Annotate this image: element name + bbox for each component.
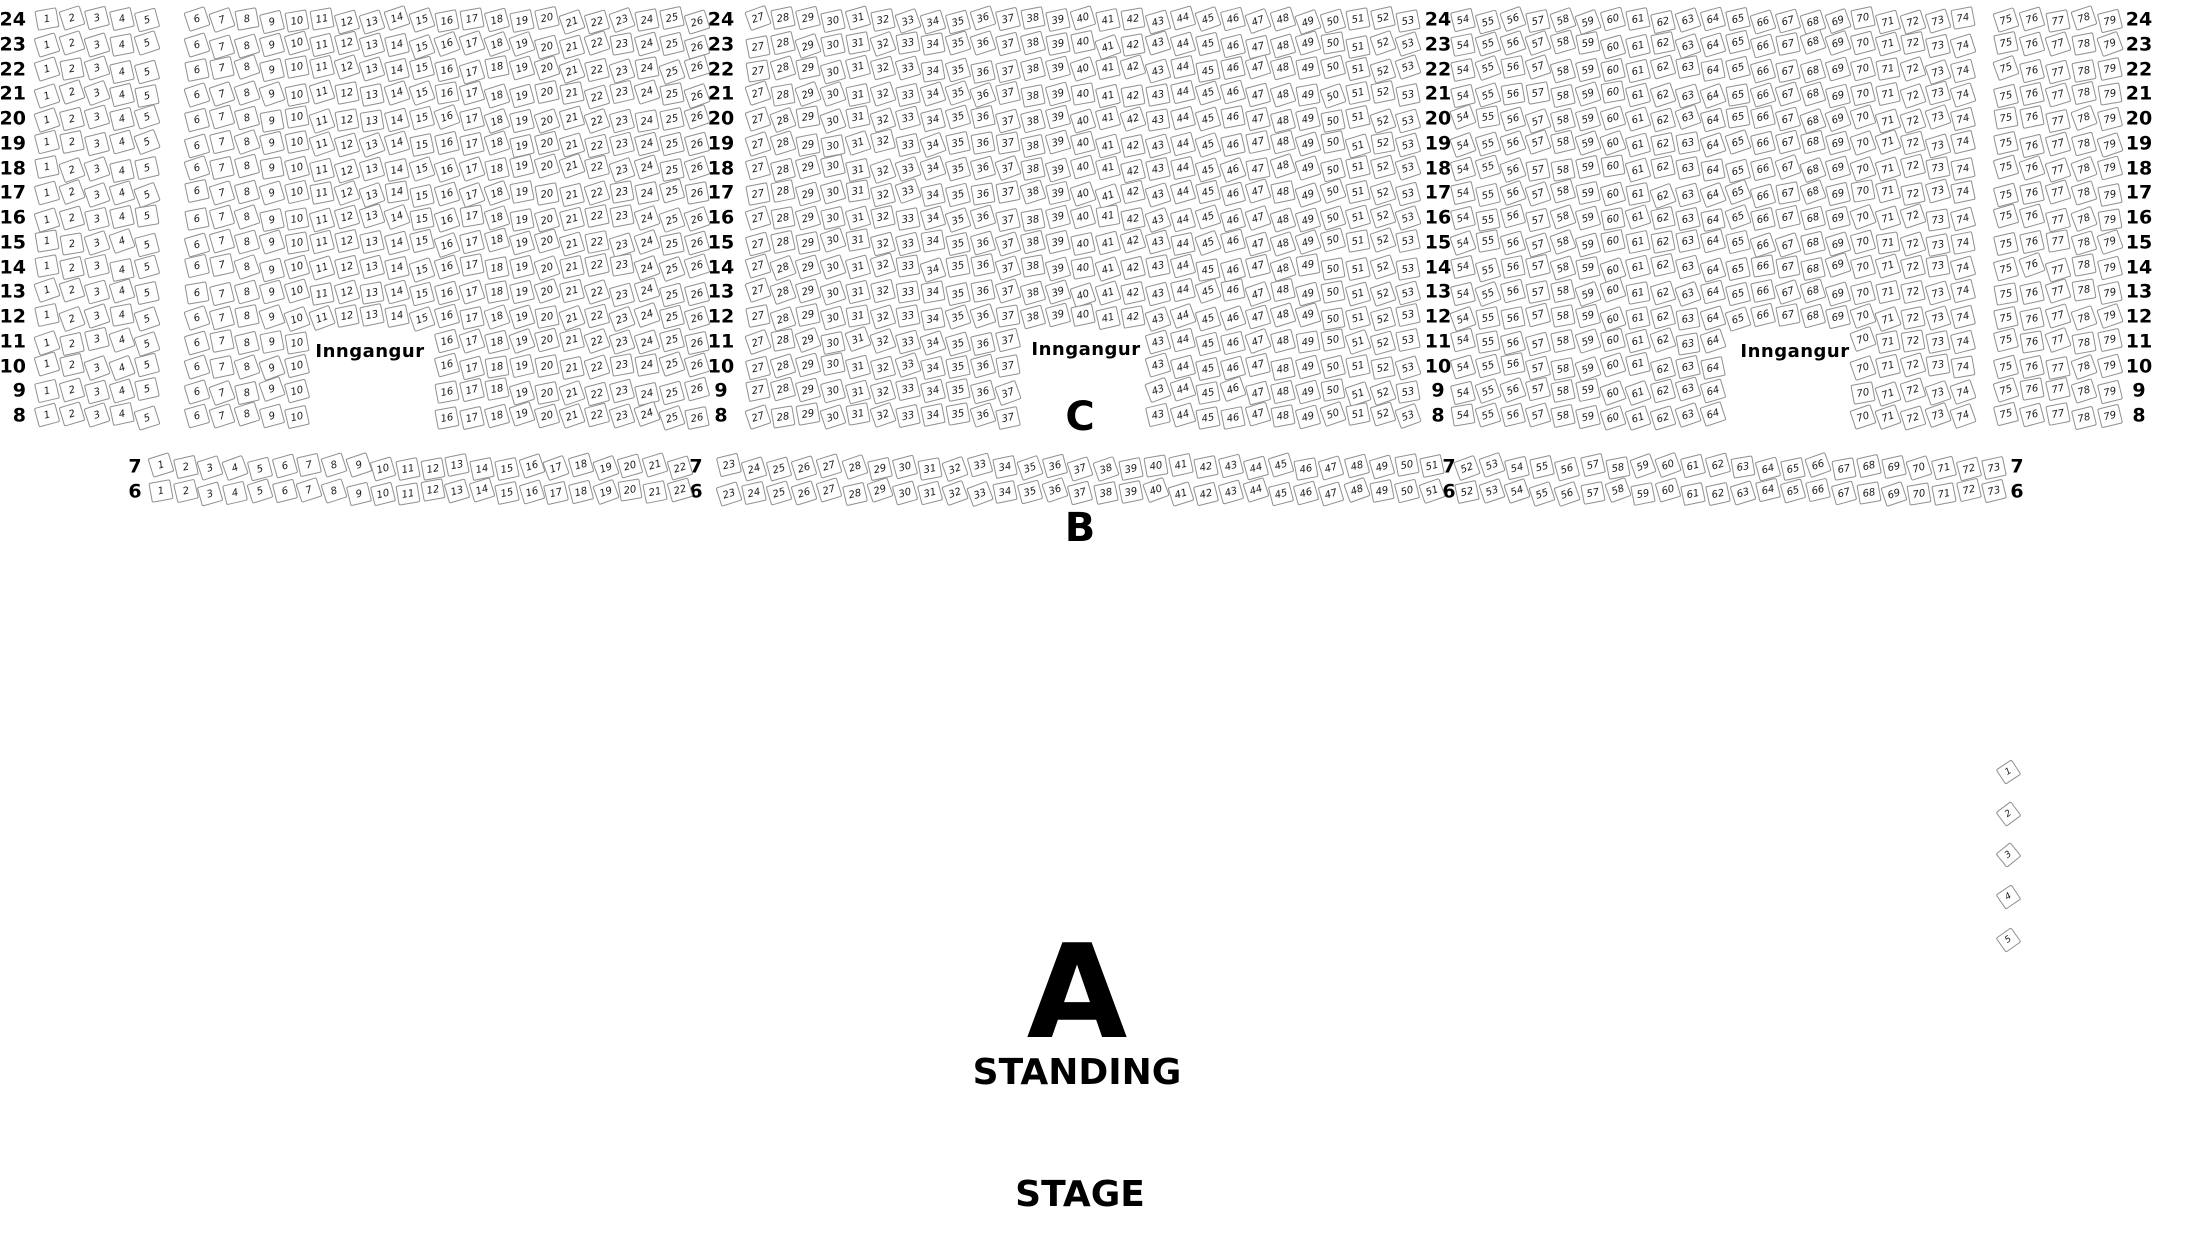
seat-5[interactable]: 5 (133, 405, 160, 431)
seat-38[interactable]: 38 (1020, 56, 1046, 81)
seat-31[interactable]: 31 (845, 304, 870, 328)
seat-60[interactable]: 60 (1599, 130, 1626, 156)
seat-46[interactable]: 46 (1220, 6, 1246, 31)
seat-4[interactable]: 4 (221, 455, 249, 481)
seat-34[interactable]: 34 (920, 229, 945, 252)
seat-75[interactable]: 75 (1993, 204, 2020, 229)
seat-62[interactable]: 62 (1705, 482, 1731, 506)
seat-39[interactable]: 39 (1045, 256, 1072, 281)
seat-5[interactable]: 5 (134, 281, 160, 305)
seat-34[interactable]: 34 (920, 356, 946, 380)
seat-33[interactable]: 33 (895, 377, 921, 401)
seat-48[interactable]: 48 (1343, 454, 1369, 479)
seat-30[interactable]: 30 (891, 481, 918, 506)
seat-73[interactable]: 73 (1925, 8, 1952, 34)
seat-61[interactable]: 61 (1625, 329, 1651, 354)
seat-40[interactable]: 40 (1070, 303, 1096, 327)
seat-75[interactable]: 75 (1993, 182, 2019, 207)
seat-41[interactable]: 41 (1094, 281, 1121, 307)
seat-35[interactable]: 35 (945, 281, 971, 305)
seat-54[interactable]: 54 (1450, 205, 1476, 230)
seat-29[interactable]: 29 (794, 327, 822, 353)
seat-68[interactable]: 68 (1800, 59, 1827, 84)
seat-70[interactable]: 70 (1850, 255, 1876, 280)
seat-20[interactable]: 20 (617, 454, 644, 479)
seat-7[interactable]: 7 (208, 380, 236, 406)
seat-12[interactable]: 12 (334, 158, 361, 184)
seat-21[interactable]: 21 (558, 9, 585, 35)
seat-46[interactable]: 46 (1219, 376, 1246, 402)
seat-43[interactable]: 43 (1145, 157, 1171, 181)
seat-15[interactable]: 15 (408, 156, 435, 182)
seat-31[interactable]: 31 (845, 31, 870, 55)
seat-38[interactable]: 38 (1020, 84, 1045, 108)
seat-14[interactable]: 14 (384, 33, 410, 58)
seat-2[interactable]: 2 (59, 57, 84, 81)
seat-2[interactable]: 2 (59, 352, 85, 376)
seat-23[interactable]: 23 (609, 180, 634, 204)
seat-64[interactable]: 64 (1700, 228, 1726, 253)
seat-64[interactable]: 64 (1700, 6, 1727, 31)
seat-49[interactable]: 49 (1294, 182, 1321, 208)
seat-37[interactable]: 37 (994, 155, 1021, 181)
seat-35[interactable]: 35 (945, 104, 972, 129)
seat-8[interactable]: 8 (233, 80, 260, 106)
seat-8[interactable]: 8 (233, 204, 260, 230)
seat-67[interactable]: 67 (1831, 457, 1856, 481)
seat-49[interactable]: 49 (1368, 455, 1395, 480)
seat-59[interactable]: 59 (1575, 256, 1601, 280)
seat-9[interactable]: 9 (259, 109, 284, 133)
seat-20[interactable]: 20 (534, 305, 559, 329)
seat-28[interactable]: 28 (770, 376, 796, 401)
seat-11[interactable]: 11 (309, 282, 334, 306)
seat-61[interactable]: 61 (1625, 82, 1651, 107)
seat-15[interactable]: 15 (409, 133, 435, 157)
seat-31[interactable]: 31 (845, 402, 870, 426)
seat-58[interactable]: 58 (1550, 378, 1576, 402)
seat-58[interactable]: 58 (1549, 204, 1576, 230)
seat-67[interactable]: 67 (1775, 32, 1801, 56)
seat-19[interactable]: 19 (509, 180, 534, 204)
seat-58[interactable]: 58 (1604, 477, 1632, 503)
seat-56[interactable]: 56 (1500, 82, 1525, 105)
seat-45[interactable]: 45 (1195, 80, 1222, 106)
seat-72[interactable]: 72 (1956, 457, 1982, 482)
seat-59[interactable]: 59 (1575, 378, 1601, 402)
seat-51[interactable]: 51 (1345, 306, 1371, 331)
seat-10[interactable]: 10 (284, 232, 309, 256)
seat-18[interactable]: 18 (484, 228, 511, 253)
seat-75[interactable]: 75 (1993, 84, 2019, 109)
seat-35[interactable]: 35 (1017, 455, 1044, 481)
seat-39[interactable]: 39 (1045, 32, 1071, 56)
seat-61[interactable]: 61 (1624, 380, 1652, 406)
seat-52[interactable]: 52 (1370, 132, 1395, 156)
seat-35[interactable]: 35 (945, 131, 971, 155)
seat-49[interactable]: 49 (1295, 330, 1320, 353)
seat-23[interactable]: 23 (608, 157, 635, 183)
seat-37[interactable]: 37 (995, 81, 1021, 105)
seat-71[interactable]: 71 (1874, 306, 1901, 332)
seat-56[interactable]: 56 (1499, 377, 1526, 403)
seat-26[interactable]: 26 (683, 253, 710, 279)
seat-65[interactable]: 65 (1725, 282, 1751, 307)
seat-40[interactable]: 40 (1070, 204, 1097, 229)
seat-10[interactable]: 10 (284, 180, 310, 204)
seat-76[interactable]: 76 (2019, 181, 2045, 205)
seat-62[interactable]: 62 (1650, 132, 1676, 156)
seat-40[interactable]: 40 (1143, 455, 1168, 478)
seat-24[interactable]: 24 (741, 457, 768, 483)
seat-68[interactable]: 68 (1800, 130, 1826, 155)
seat-70[interactable]: 70 (1849, 156, 1876, 182)
seat-70[interactable]: 70 (1850, 230, 1877, 255)
seat-59[interactable]: 59 (1575, 106, 1602, 131)
seat-39[interactable]: 39 (1044, 279, 1071, 305)
seat-12[interactable]: 12 (334, 9, 361, 34)
seat-31[interactable]: 31 (844, 130, 871, 156)
seat-40[interactable]: 40 (1069, 181, 1096, 207)
seat-79[interactable]: 79 (2097, 82, 2122, 105)
seat-11[interactable]: 11 (308, 131, 335, 157)
seat-29[interactable]: 29 (794, 33, 821, 59)
seat-52[interactable]: 52 (1370, 401, 1397, 427)
seat-9[interactable]: 9 (258, 304, 285, 330)
seat-69[interactable]: 69 (1824, 106, 1852, 132)
seat-57[interactable]: 57 (1525, 81, 1550, 105)
seat-8[interactable]: 8 (234, 331, 260, 356)
seat-59[interactable]: 59 (1575, 205, 1602, 230)
seat-26[interactable]: 26 (791, 480, 818, 506)
seat-1[interactable]: 1 (34, 352, 61, 378)
seat-51[interactable]: 51 (1345, 354, 1371, 378)
seat-61[interactable]: 61 (1624, 405, 1651, 431)
seat-18[interactable]: 18 (483, 31, 511, 57)
seat-23[interactable]: 23 (608, 305, 636, 331)
seat-43[interactable]: 43 (1144, 207, 1171, 233)
seat-42[interactable]: 42 (1120, 55, 1147, 81)
seat-70[interactable]: 70 (1905, 455, 1932, 481)
seat-79[interactable]: 79 (2097, 353, 2124, 378)
seat-38[interactable]: 38 (1020, 30, 1046, 55)
seat-55[interactable]: 55 (1475, 9, 1502, 34)
seat-74[interactable]: 74 (1950, 305, 1976, 330)
seat-3[interactable]: 3 (83, 182, 110, 208)
seat-55[interactable]: 55 (1474, 82, 1501, 108)
seat-37[interactable]: 37 (1067, 480, 1093, 505)
seat-6[interactable]: 6 (184, 32, 211, 58)
seat-21[interactable]: 21 (559, 105, 586, 130)
seat-35[interactable]: 35 (944, 80, 971, 106)
seat-64[interactable]: 64 (1755, 477, 1781, 502)
seat-58[interactable]: 58 (1550, 178, 1577, 203)
seat-11[interactable]: 11 (308, 305, 336, 331)
seat-22[interactable]: 22 (584, 84, 611, 110)
seat-2[interactable]: 2 (58, 306, 86, 332)
seat-29[interactable]: 29 (795, 154, 822, 179)
seat-27[interactable]: 27 (744, 80, 771, 106)
seat-67[interactable]: 67 (1774, 154, 1801, 180)
seat-32[interactable]: 32 (869, 402, 896, 428)
seat-33[interactable]: 33 (895, 304, 920, 328)
seat-19[interactable]: 19 (592, 479, 620, 505)
seat-50[interactable]: 50 (1319, 178, 1346, 204)
seat-14[interactable]: 14 (384, 158, 410, 182)
seat-28[interactable]: 28 (770, 6, 796, 30)
seat-8[interactable]: 8 (234, 7, 259, 31)
seat-74[interactable]: 74 (1950, 106, 1976, 131)
seat-64[interactable]: 64 (1700, 305, 1727, 331)
seat-52[interactable]: 52 (1370, 155, 1396, 180)
seat-9[interactable]: 9 (259, 208, 285, 232)
seat-49[interactable]: 49 (1295, 405, 1322, 430)
seat-4[interactable]: 4 (109, 130, 136, 155)
seat-21[interactable]: 21 (559, 278, 585, 303)
seat-36[interactable]: 36 (970, 332, 996, 356)
seat-48[interactable]: 48 (1270, 278, 1296, 302)
seat-1[interactable]: 1 (34, 230, 59, 253)
seat-51[interactable]: 51 (1345, 180, 1371, 204)
seat-39[interactable]: 39 (1045, 181, 1071, 205)
seat-41[interactable]: 41 (1094, 34, 1122, 60)
seat-64[interactable]: 64 (1699, 83, 1727, 109)
seat-31[interactable]: 31 (845, 355, 871, 380)
seat-63[interactable]: 63 (1674, 33, 1701, 59)
seat-58[interactable]: 58 (1550, 304, 1575, 328)
seat-46[interactable]: 46 (1220, 79, 1247, 104)
seat-57[interactable]: 57 (1524, 54, 1551, 80)
seat-37[interactable]: 37 (995, 231, 1022, 257)
seat-55[interactable]: 55 (1529, 454, 1555, 478)
seat-47[interactable]: 47 (1245, 82, 1271, 107)
seat-3[interactable]: 3 (83, 303, 110, 329)
seat-44[interactable]: 44 (1243, 456, 1269, 481)
seat-18[interactable]: 18 (568, 480, 594, 505)
seat-23[interactable]: 23 (608, 7, 635, 33)
seat-73[interactable]: 73 (1925, 179, 1952, 204)
seat-68[interactable]: 68 (1800, 304, 1827, 329)
seat-25[interactable]: 25 (659, 328, 685, 353)
seat-73[interactable]: 73 (1925, 133, 1952, 159)
seat-56[interactable]: 56 (1500, 279, 1526, 304)
seat-7[interactable]: 7 (208, 81, 235, 107)
seat-4[interactable]: 4 (109, 33, 134, 57)
seat-31[interactable]: 31 (917, 480, 943, 505)
seat-18[interactable]: 18 (484, 377, 509, 401)
seat-71[interactable]: 71 (1875, 179, 1901, 204)
seat-43[interactable]: 43 (1144, 376, 1172, 402)
seat-46[interactable]: 46 (1220, 56, 1246, 80)
seat-8[interactable]: 8 (234, 154, 260, 179)
seat-1[interactable]: 1 (34, 379, 60, 403)
seat-9[interactable]: 9 (346, 481, 372, 506)
seat-44[interactable]: 44 (1170, 105, 1196, 130)
seat-61[interactable]: 61 (1625, 230, 1651, 254)
seat-62[interactable]: 62 (1650, 280, 1677, 305)
seat-16[interactable]: 16 (433, 103, 461, 129)
seat-31[interactable]: 31 (917, 458, 942, 482)
seat-65[interactable]: 65 (1725, 158, 1751, 183)
seat-77[interactable]: 77 (2045, 180, 2072, 206)
seat-64[interactable]: 64 (1699, 181, 1727, 207)
seat-28[interactable]: 28 (770, 158, 796, 183)
seat-29[interactable]: 29 (795, 181, 822, 206)
seat-2[interactable]: 2 (59, 401, 86, 426)
seat-3[interactable]: 3 (84, 379, 110, 404)
seat-43[interactable]: 43 (1145, 282, 1171, 307)
seat-61[interactable]: 61 (1680, 481, 1706, 505)
seat-53[interactable]: 53 (1394, 205, 1421, 231)
seat-13[interactable]: 13 (359, 83, 384, 107)
seat-27[interactable]: 27 (745, 205, 772, 231)
seat-4[interactable]: 4 (109, 258, 135, 282)
seat-65[interactable]: 65 (1724, 204, 1751, 230)
seat-28[interactable]: 28 (770, 353, 797, 379)
seat-64[interactable]: 64 (1700, 32, 1727, 58)
seat-4[interactable]: 4 (1995, 884, 2021, 910)
seat-41[interactable]: 41 (1095, 205, 1120, 228)
seat-59[interactable]: 59 (1629, 453, 1656, 479)
seat-70[interactable]: 70 (1849, 326, 1877, 352)
seat-71[interactable]: 71 (1875, 57, 1900, 81)
seat-46[interactable]: 46 (1220, 33, 1246, 58)
seat-60[interactable]: 60 (1599, 306, 1626, 332)
seat-41[interactable]: 41 (1094, 256, 1121, 282)
seat-32[interactable]: 32 (870, 279, 896, 304)
seat-29[interactable]: 29 (795, 278, 822, 303)
seat-65[interactable]: 65 (1725, 106, 1750, 129)
seat-1[interactable]: 1 (33, 107, 60, 133)
seat-44[interactable]: 44 (1170, 131, 1196, 156)
seat-53[interactable]: 53 (1394, 54, 1421, 80)
seat-49[interactable]: 49 (1295, 83, 1320, 107)
seat-3[interactable]: 3 (84, 254, 110, 279)
seat-38[interactable]: 38 (1020, 6, 1045, 30)
seat-59[interactable]: 59 (1574, 356, 1601, 382)
seat-54[interactable]: 54 (1450, 254, 1476, 278)
seat-20[interactable]: 20 (534, 228, 561, 254)
seat-2[interactable]: 2 (59, 233, 84, 256)
seat-22[interactable]: 22 (584, 253, 610, 277)
seat-43[interactable]: 43 (1145, 31, 1172, 57)
seat-56[interactable]: 56 (1500, 255, 1525, 279)
seat-50[interactable]: 50 (1320, 55, 1346, 80)
seat-43[interactable]: 43 (1145, 59, 1172, 85)
seat-5[interactable]: 5 (133, 181, 161, 207)
seat-48[interactable]: 48 (1269, 82, 1296, 108)
seat-78[interactable]: 78 (2070, 5, 2097, 31)
seat-60[interactable]: 60 (1600, 155, 1625, 178)
seat-44[interactable]: 44 (1170, 55, 1196, 79)
seat-41[interactable]: 41 (1095, 230, 1121, 255)
seat-58[interactable]: 58 (1550, 158, 1575, 182)
seat-50[interactable]: 50 (1320, 157, 1346, 182)
seat-66[interactable]: 66 (1750, 157, 1776, 182)
seat-21[interactable]: 21 (558, 403, 585, 429)
seat-71[interactable]: 71 (1875, 280, 1901, 304)
seat-56[interactable]: 56 (1554, 481, 1581, 507)
seat-71[interactable]: 71 (1931, 482, 1956, 506)
seat-75[interactable]: 75 (1992, 55, 2019, 81)
seat-2[interactable]: 2 (58, 79, 85, 105)
seat-21[interactable]: 21 (559, 183, 585, 208)
seat-6[interactable]: 6 (184, 403, 211, 428)
seat-60[interactable]: 60 (1654, 451, 1682, 477)
seat-51[interactable]: 51 (1345, 133, 1372, 159)
seat-49[interactable]: 49 (1295, 253, 1320, 277)
seat-54[interactable]: 54 (1449, 132, 1476, 158)
seat-79[interactable]: 79 (2097, 183, 2123, 207)
seat-74[interactable]: 74 (1950, 329, 1976, 354)
seat-58[interactable]: 58 (1549, 229, 1576, 255)
seat-57[interactable]: 57 (1525, 403, 1552, 429)
seat-37[interactable]: 37 (995, 108, 1021, 133)
seat-77[interactable]: 77 (2045, 132, 2072, 157)
seat-78[interactable]: 78 (2071, 32, 2096, 56)
seat-69[interactable]: 69 (1825, 182, 1851, 207)
seat-66[interactable]: 66 (1750, 302, 1776, 327)
seat-27[interactable]: 27 (744, 329, 771, 355)
seat-11[interactable]: 11 (309, 256, 336, 282)
seat-28[interactable]: 28 (769, 306, 796, 332)
seat-59[interactable]: 59 (1575, 155, 1601, 179)
seat-29[interactable]: 29 (795, 133, 820, 157)
seat-71[interactable]: 71 (1874, 381, 1901, 407)
seat-8[interactable]: 8 (233, 54, 260, 80)
seat-27[interactable]: 27 (745, 304, 770, 328)
seat-16[interactable]: 16 (434, 329, 460, 354)
seat-37[interactable]: 37 (994, 255, 1021, 281)
seat-64[interactable]: 64 (1700, 280, 1726, 305)
seat-73[interactable]: 73 (1925, 156, 1950, 180)
seat-10[interactable]: 10 (370, 481, 396, 506)
seat-48[interactable]: 48 (1270, 357, 1296, 381)
seat-64[interactable]: 64 (1700, 107, 1726, 132)
seat-74[interactable]: 74 (1949, 83, 1976, 109)
seat-41[interactable]: 41 (1095, 56, 1121, 80)
seat-16[interactable]: 16 (518, 453, 545, 479)
seat-34[interactable]: 34 (920, 379, 946, 404)
seat-7[interactable]: 7 (296, 452, 322, 476)
seat-63[interactable]: 63 (1675, 156, 1701, 180)
seat-9[interactable]: 9 (259, 330, 284, 354)
seat-62[interactable]: 62 (1649, 82, 1676, 108)
seat-40[interactable]: 40 (1070, 30, 1096, 54)
seat-56[interactable]: 56 (1500, 331, 1526, 356)
seat-65[interactable]: 65 (1780, 478, 1807, 503)
seat-64[interactable]: 64 (1700, 208, 1726, 232)
seat-73[interactable]: 73 (1924, 379, 1951, 405)
seat-72[interactable]: 72 (1900, 405, 1927, 431)
seat-11[interactable]: 11 (309, 7, 334, 30)
seat-13[interactable]: 13 (444, 478, 471, 503)
seat-10[interactable]: 10 (284, 255, 311, 280)
seat-32[interactable]: 32 (870, 380, 897, 405)
seat-17[interactable]: 17 (459, 107, 485, 132)
seat-78[interactable]: 78 (2070, 378, 2097, 404)
seat-63[interactable]: 63 (1674, 103, 1701, 129)
seat-70[interactable]: 70 (1849, 303, 1876, 329)
seat-69[interactable]: 69 (1824, 8, 1852, 34)
seat-52[interactable]: 52 (1453, 455, 1481, 481)
seat-9[interactable]: 9 (259, 257, 285, 282)
seat-16[interactable]: 16 (434, 303, 461, 328)
seat-43[interactable]: 43 (1218, 479, 1245, 504)
seat-14[interactable]: 14 (384, 231, 410, 256)
seat-50[interactable]: 50 (1320, 378, 1345, 402)
seat-51[interactable]: 51 (1345, 229, 1370, 253)
